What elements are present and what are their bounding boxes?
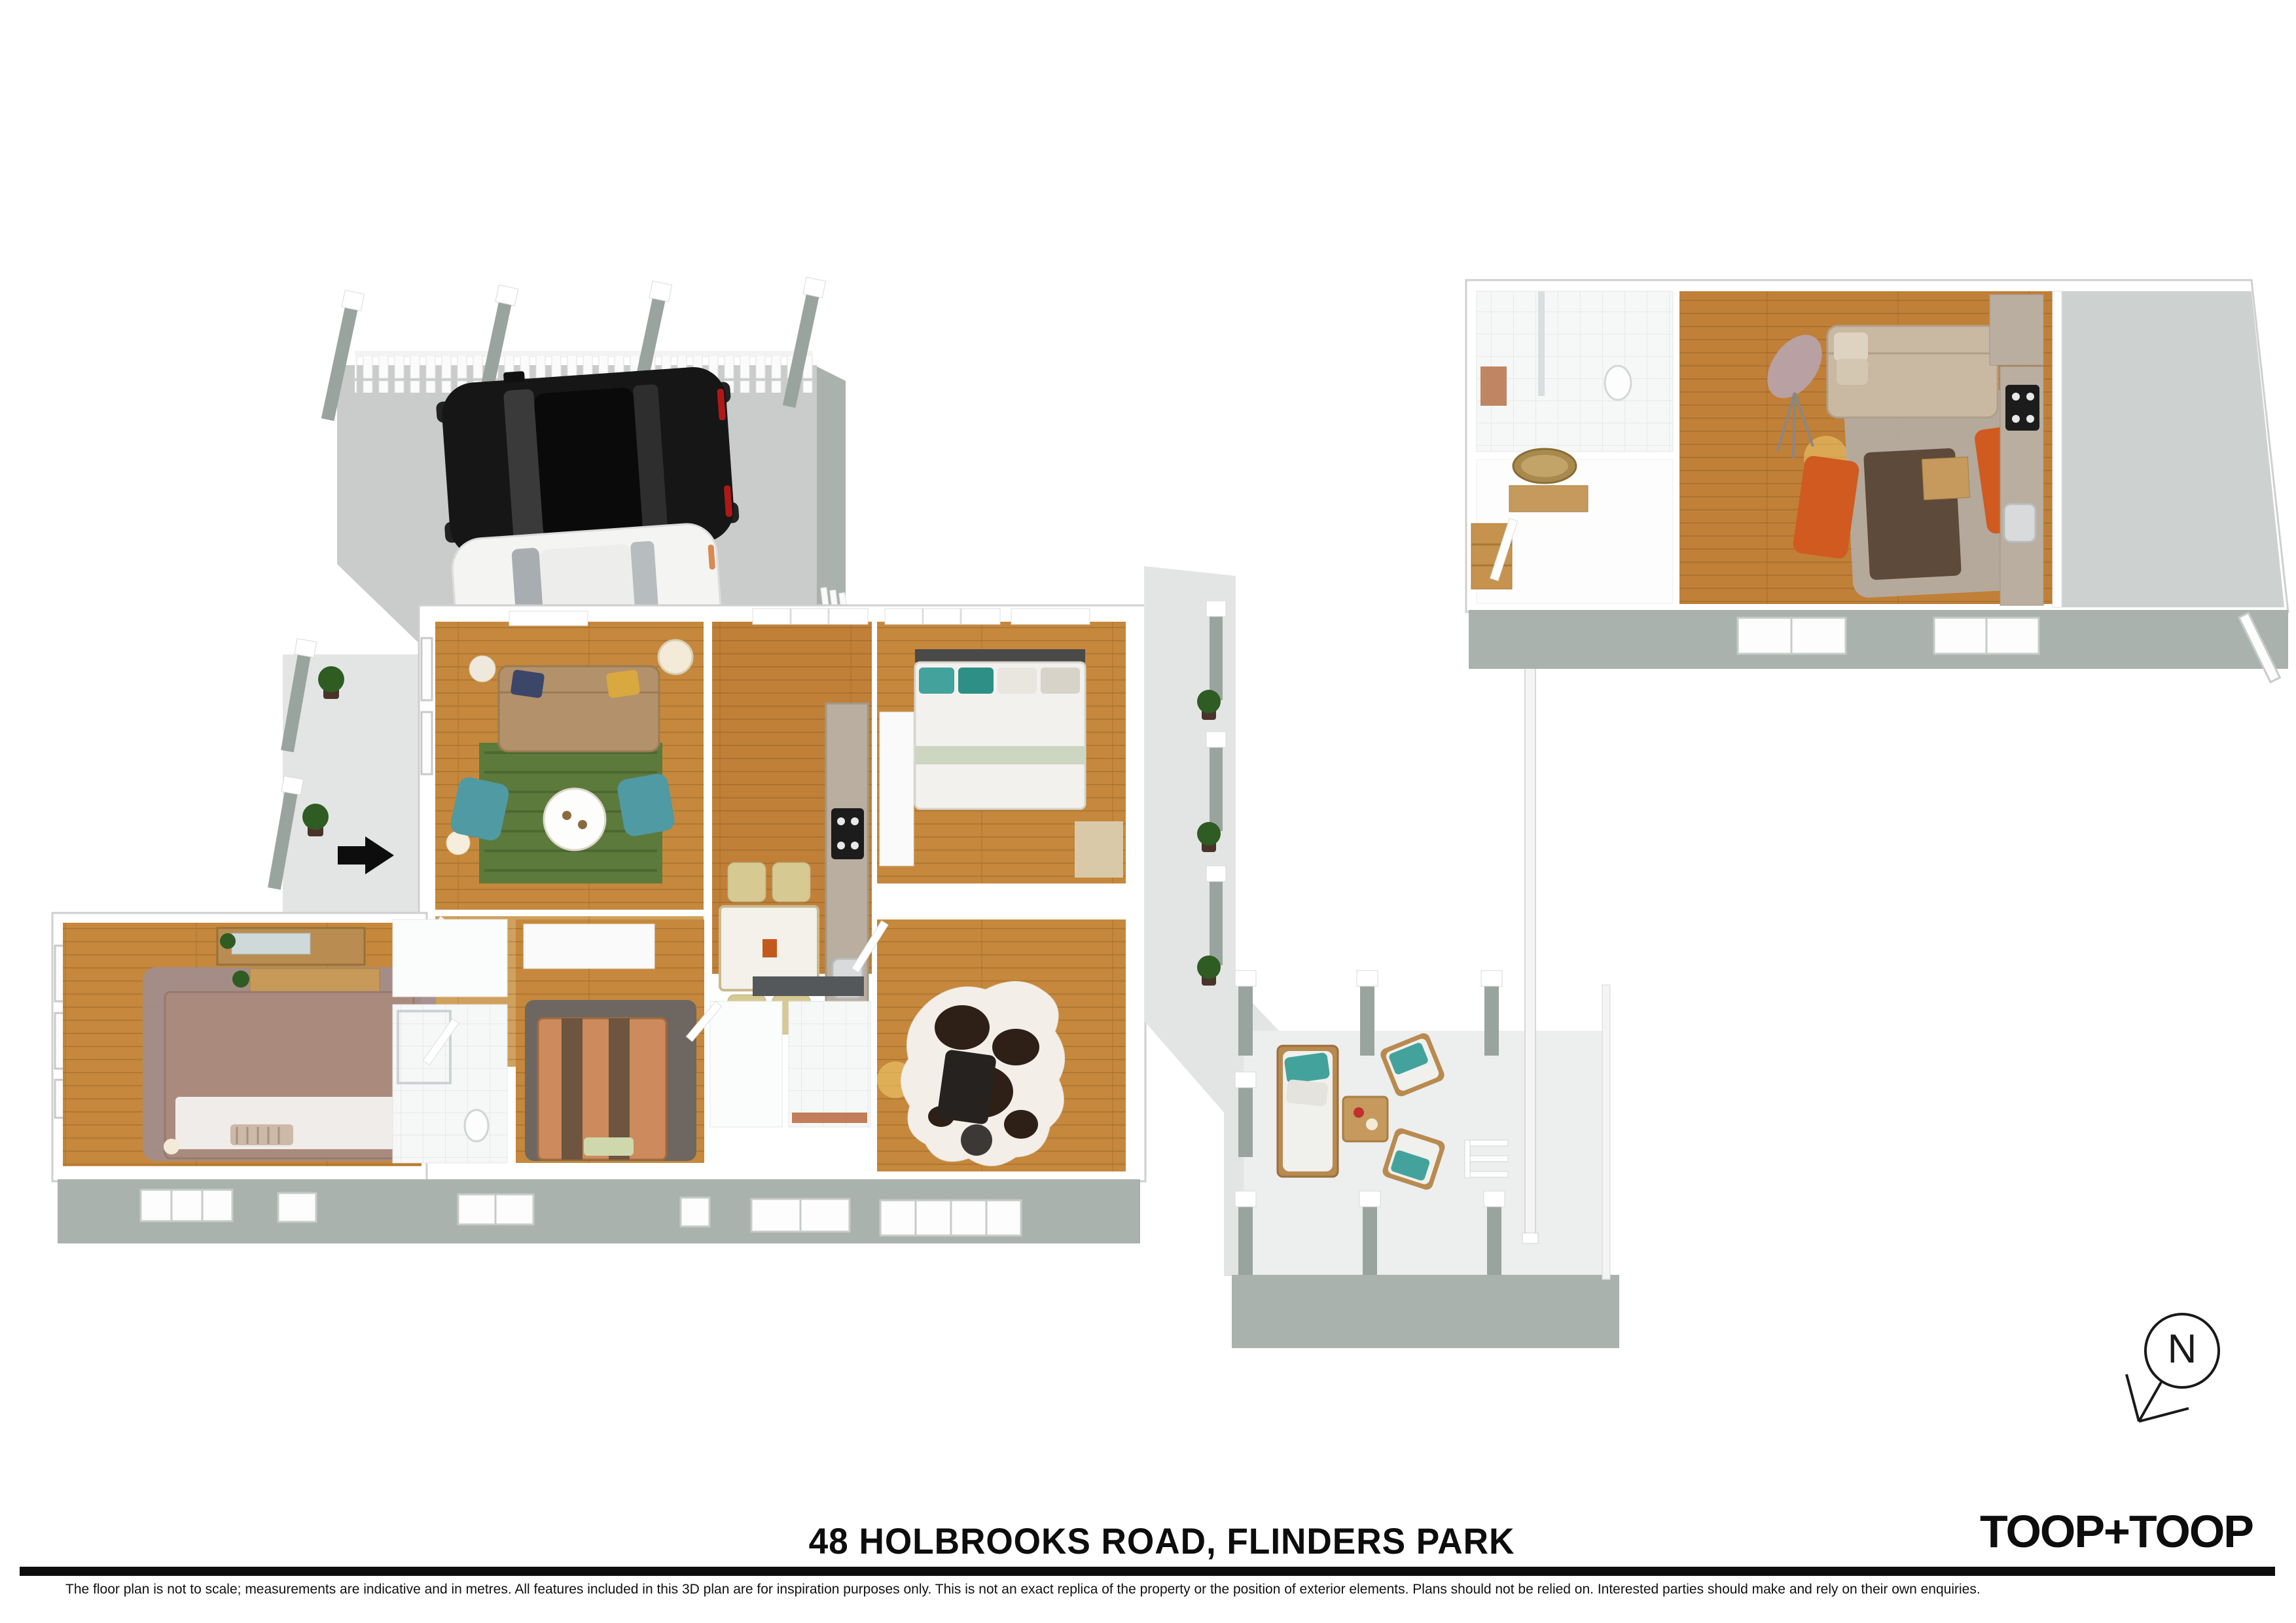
- kitchen-dining: [712, 609, 872, 1034]
- study-bedroom: [852, 919, 1126, 1171]
- wc: [710, 1001, 782, 1127]
- cooktop: [2005, 385, 2039, 431]
- studio-front-wall: [1469, 610, 2288, 669]
- mustard-pillow: [606, 669, 641, 698]
- wardrobe: [524, 924, 655, 969]
- outdoor-sofa: [1278, 1046, 1338, 1177]
- patio-front-wall: [1232, 1275, 1619, 1348]
- teal-pillow: [958, 668, 994, 694]
- studio-bathroom: [1477, 291, 1673, 452]
- beige-sofa: [1827, 326, 1998, 418]
- property-address-title: 48 HOLBROOKS ROAD, FLINDERS PARK: [809, 1520, 1515, 1562]
- patio: [1232, 971, 1619, 1348]
- patio-side-fence: [1602, 985, 1610, 1279]
- disclaimer-text: The floor plan is not to scale; measurem…: [65, 1582, 1981, 1597]
- wardrobe: [880, 712, 914, 866]
- sink: [2004, 504, 2036, 542]
- striped-bed: [538, 1018, 666, 1160]
- studio-hall: [1471, 449, 1673, 603]
- mauve-double-bed: [165, 992, 414, 1158]
- tile-border: [792, 1113, 867, 1123]
- master-bedroom: [63, 923, 436, 1166]
- cooktop: [831, 808, 864, 859]
- side-table: [469, 656, 495, 682]
- console-table: [1509, 486, 1588, 512]
- stool: [961, 1124, 992, 1156]
- linen-room: [393, 919, 507, 997]
- north-label: N: [2168, 1327, 2197, 1372]
- bedside-lamp: [164, 1139, 179, 1154]
- bedroom-1: [877, 609, 1126, 883]
- dresser-with-mirror: [217, 928, 365, 965]
- window: [1011, 609, 1090, 624]
- high-window: [509, 611, 588, 626]
- wc-laundry: [686, 1001, 870, 1127]
- main-house: [52, 605, 1145, 1243]
- floor-lamp: [658, 640, 692, 674]
- green-pillow: [584, 1137, 634, 1156]
- vanity: [1480, 366, 1507, 406]
- bedroom-2: [516, 919, 704, 1163]
- wood-tray: [1922, 457, 1969, 500]
- laundry: [789, 1001, 870, 1127]
- floor-plan-art: N: [0, 0, 2296, 1623]
- door-threshold: [753, 976, 864, 996]
- skylight-window: [753, 609, 868, 624]
- window: [885, 609, 1000, 624]
- rear-studio: [1466, 280, 2288, 682]
- north-arrowhead: [2126, 1374, 2189, 1421]
- round-coffee-table: [544, 789, 605, 850]
- living-room: [435, 611, 704, 910]
- studio-utility: [2053, 291, 2284, 607]
- toilet: [465, 1110, 488, 1141]
- footer-divider: [20, 1567, 2275, 1576]
- teal-armchair: [616, 772, 676, 838]
- floor-mat: [1075, 821, 1123, 878]
- toilet: [1605, 366, 1631, 400]
- agency-logo: TOOP+TOOP: [1980, 1505, 2253, 1558]
- teal-pillow: [919, 668, 954, 694]
- double-bed: [915, 649, 1085, 809]
- dining-chair: [772, 863, 810, 902]
- entry-steps: [1471, 518, 1518, 589]
- desk-chair: [937, 1049, 997, 1125]
- navy-pillow: [511, 669, 545, 698]
- patio-gate: [1465, 1140, 1508, 1178]
- floor-plan-page: N 48 HOLBROOKS ROAD, FLINDERS PARK TOOP+…: [0, 0, 2296, 1623]
- dining-chair: [728, 863, 766, 902]
- north-arrow: N: [2126, 1314, 2219, 1421]
- bathroom-column: [393, 919, 507, 1163]
- patio-coffee-table: [1343, 1097, 1388, 1141]
- tan-sofa: [499, 666, 659, 751]
